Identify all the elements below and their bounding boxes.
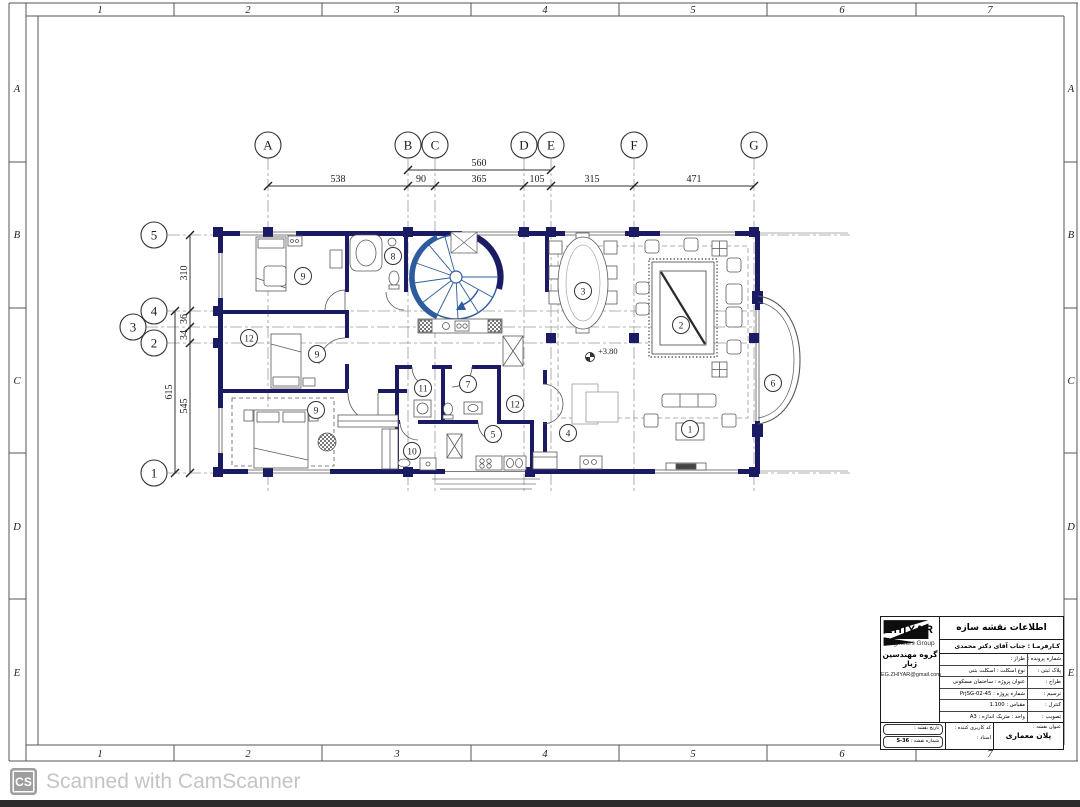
svg-text:A: A (13, 84, 21, 95)
svg-text:F: F (630, 138, 637, 153)
sheet-date-box: تاریخ نقشه : (883, 724, 943, 735)
client-row: کـارفرمـا : جناب آقای دکتر محمدی (940, 640, 1063, 654)
title-row: طراح : عنوان پروژه : ساختمان مسکونی (940, 677, 1063, 689)
camscanner-icon: CS (10, 768, 37, 795)
row-label: تصویب : (1027, 712, 1063, 723)
svg-text:+3.80: +3.80 (598, 346, 618, 356)
bottom-dark-bar (0, 800, 1080, 807)
svg-text:6: 6 (771, 380, 776, 390)
svg-text:365: 365 (472, 174, 487, 185)
svg-text:36: 36 (179, 314, 190, 324)
svg-text:5: 5 (690, 5, 695, 16)
svg-text:10: 10 (407, 448, 417, 458)
svg-text:3: 3 (581, 288, 586, 298)
svg-text:7: 7 (987, 749, 993, 760)
camscanner-watermark: CS Scanned with CamScanner (10, 768, 300, 795)
row-label: ترسیم : (1027, 689, 1063, 700)
title-row: ترسیم : شماره پروژه : PrjSG-02-45 (940, 689, 1063, 701)
title-row: شماره پرونده : طراز : (940, 654, 1063, 666)
svg-text:6: 6 (839, 5, 845, 16)
svg-text:90: 90 (416, 174, 426, 185)
svg-text:G: G (749, 138, 758, 153)
svg-text:4: 4 (151, 304, 158, 319)
grid-bubbles-left (120, 222, 167, 486)
svg-text:8: 8 (391, 253, 396, 263)
doc-label: اسناد : (946, 735, 991, 741)
row-value: عنوان پروژه : ساختمان مسکونی (940, 679, 1027, 685)
svg-text:5: 5 (151, 228, 158, 243)
svg-text:7: 7 (987, 5, 993, 16)
svg-text:B: B (14, 230, 21, 241)
svg-text:C: C (1067, 376, 1075, 387)
sheet-title: پلان معماری (994, 731, 1063, 740)
sheet-number-box: شماره نقشه : S-36 (883, 736, 943, 748)
svg-text:4: 4 (542, 5, 548, 16)
svg-text:E: E (13, 668, 21, 679)
svg-text:B: B (1068, 230, 1075, 241)
svg-text:C: C (431, 138, 440, 153)
svg-text:2: 2 (245, 749, 251, 760)
row-label: پلاک ثبتی : (1027, 666, 1063, 677)
svg-text:538: 538 (331, 174, 346, 185)
svg-text:B: B (404, 138, 413, 153)
row-value: مقیاس : 1.100 (940, 702, 1027, 708)
scanned-drawing-page: 1 2 3 4 5 6 7 1 2 3 4 5 6 7 A B C D E A … (0, 0, 1080, 807)
svg-text:7: 7 (466, 381, 471, 391)
date-number-cell: تاریخ نقشه : شماره نقشه : S-36 (881, 723, 945, 750)
svg-text:11: 11 (418, 385, 427, 395)
svg-text:1: 1 (151, 466, 158, 481)
row-label: کنترل : (1027, 700, 1063, 711)
svg-text:D: D (1066, 522, 1075, 533)
svg-text:A: A (263, 138, 273, 153)
logo-persian-name: گروه مهندسین ژیار (881, 650, 939, 668)
svg-text:12: 12 (510, 401, 520, 411)
spiral-stair (411, 232, 500, 319)
svg-text:315: 315 (585, 174, 600, 185)
svg-text:6: 6 (839, 749, 845, 760)
svg-text:1: 1 (97, 5, 102, 16)
title-block: ZHIYAR Engineers Group گروه مهندسین ژیار… (880, 616, 1064, 750)
company-logo-cell: ZHIYAR Engineers Group گروه مهندسین ژیار… (881, 617, 940, 722)
sheet-number-value: S-36 (896, 738, 909, 744)
svg-text:4: 4 (542, 749, 548, 760)
svg-text:9: 9 (314, 407, 319, 417)
row-label: طراح : (1027, 677, 1063, 688)
svg-text:5: 5 (491, 431, 496, 441)
camscanner-icon-text: CS (15, 775, 32, 789)
svg-text:1: 1 (97, 749, 102, 760)
svg-text:4: 4 (566, 430, 571, 440)
title-row: تصویب : واحد : متریک اندازه : A3 (940, 712, 1063, 723)
zhiyar-logo-icon (881, 617, 931, 649)
svg-text:3: 3 (393, 749, 399, 760)
sheet-number-label: شماره نقشه : (911, 739, 939, 744)
svg-text:C: C (13, 376, 21, 387)
grid-bubbles-top (255, 132, 767, 158)
sheet-title-cell: عنوان نقشه : پلان معماری (993, 723, 1063, 750)
svg-text:105: 105 (530, 174, 545, 185)
svg-text:E: E (1067, 668, 1075, 679)
svg-text:471: 471 (687, 174, 702, 185)
row-value: طراز : (940, 656, 1027, 662)
title-row: پلاک ثبتی : نوع اسکلت : اسکلت بتنی (940, 666, 1063, 678)
svg-text:D: D (12, 522, 21, 533)
svg-text:545: 545 (179, 399, 190, 414)
code-cell: کد کاربری کننده : اسناد : (945, 723, 993, 750)
svg-text:2: 2 (151, 336, 158, 351)
svg-text:34: 34 (179, 330, 190, 340)
svg-text:1: 1 (688, 426, 693, 436)
svg-text:2: 2 (245, 5, 251, 16)
level-marker: +3.80 (586, 346, 618, 362)
titleblock-header: اطلاعات نقشه سازه (940, 617, 1063, 640)
svg-text:3: 3 (393, 5, 399, 16)
reference-extension-lines (760, 233, 848, 471)
svg-text:9: 9 (301, 273, 306, 283)
logo-email: EG.ZHIYAR@gmail.com (881, 672, 939, 678)
svg-text:5: 5 (690, 749, 695, 760)
svg-text:D: D (519, 138, 528, 153)
row-value: واحد : متریک اندازه : A3 (940, 714, 1027, 720)
svg-text:3: 3 (130, 320, 137, 335)
svg-text:A: A (1067, 84, 1075, 95)
svg-text:2: 2 (679, 322, 684, 332)
row-label: شماره پرونده : (1027, 654, 1063, 665)
svg-text:560: 560 (472, 158, 487, 169)
svg-text:12: 12 (244, 335, 254, 345)
title-row: کنترل : مقیاس : 1.100 (940, 700, 1063, 712)
titleblock-rows: شماره پرونده : طراز : پلاک ثبتی : نوع اس… (940, 654, 1063, 722)
svg-text:E: E (547, 138, 555, 153)
svg-text:9: 9 (315, 351, 320, 361)
svg-text:310: 310 (179, 266, 190, 281)
balcony (758, 296, 800, 424)
camscanner-text: Scanned with CamScanner (46, 770, 300, 794)
row-value: شماره پروژه : PrjSG-02-45 (940, 691, 1027, 697)
svg-text:615: 615 (164, 385, 175, 400)
row-value: نوع اسکلت : اسکلت بتنی (940, 668, 1027, 674)
sheet-title-label: عنوان نقشه : (994, 723, 1063, 730)
user-code-label: کد کاربری کننده : (946, 725, 991, 731)
